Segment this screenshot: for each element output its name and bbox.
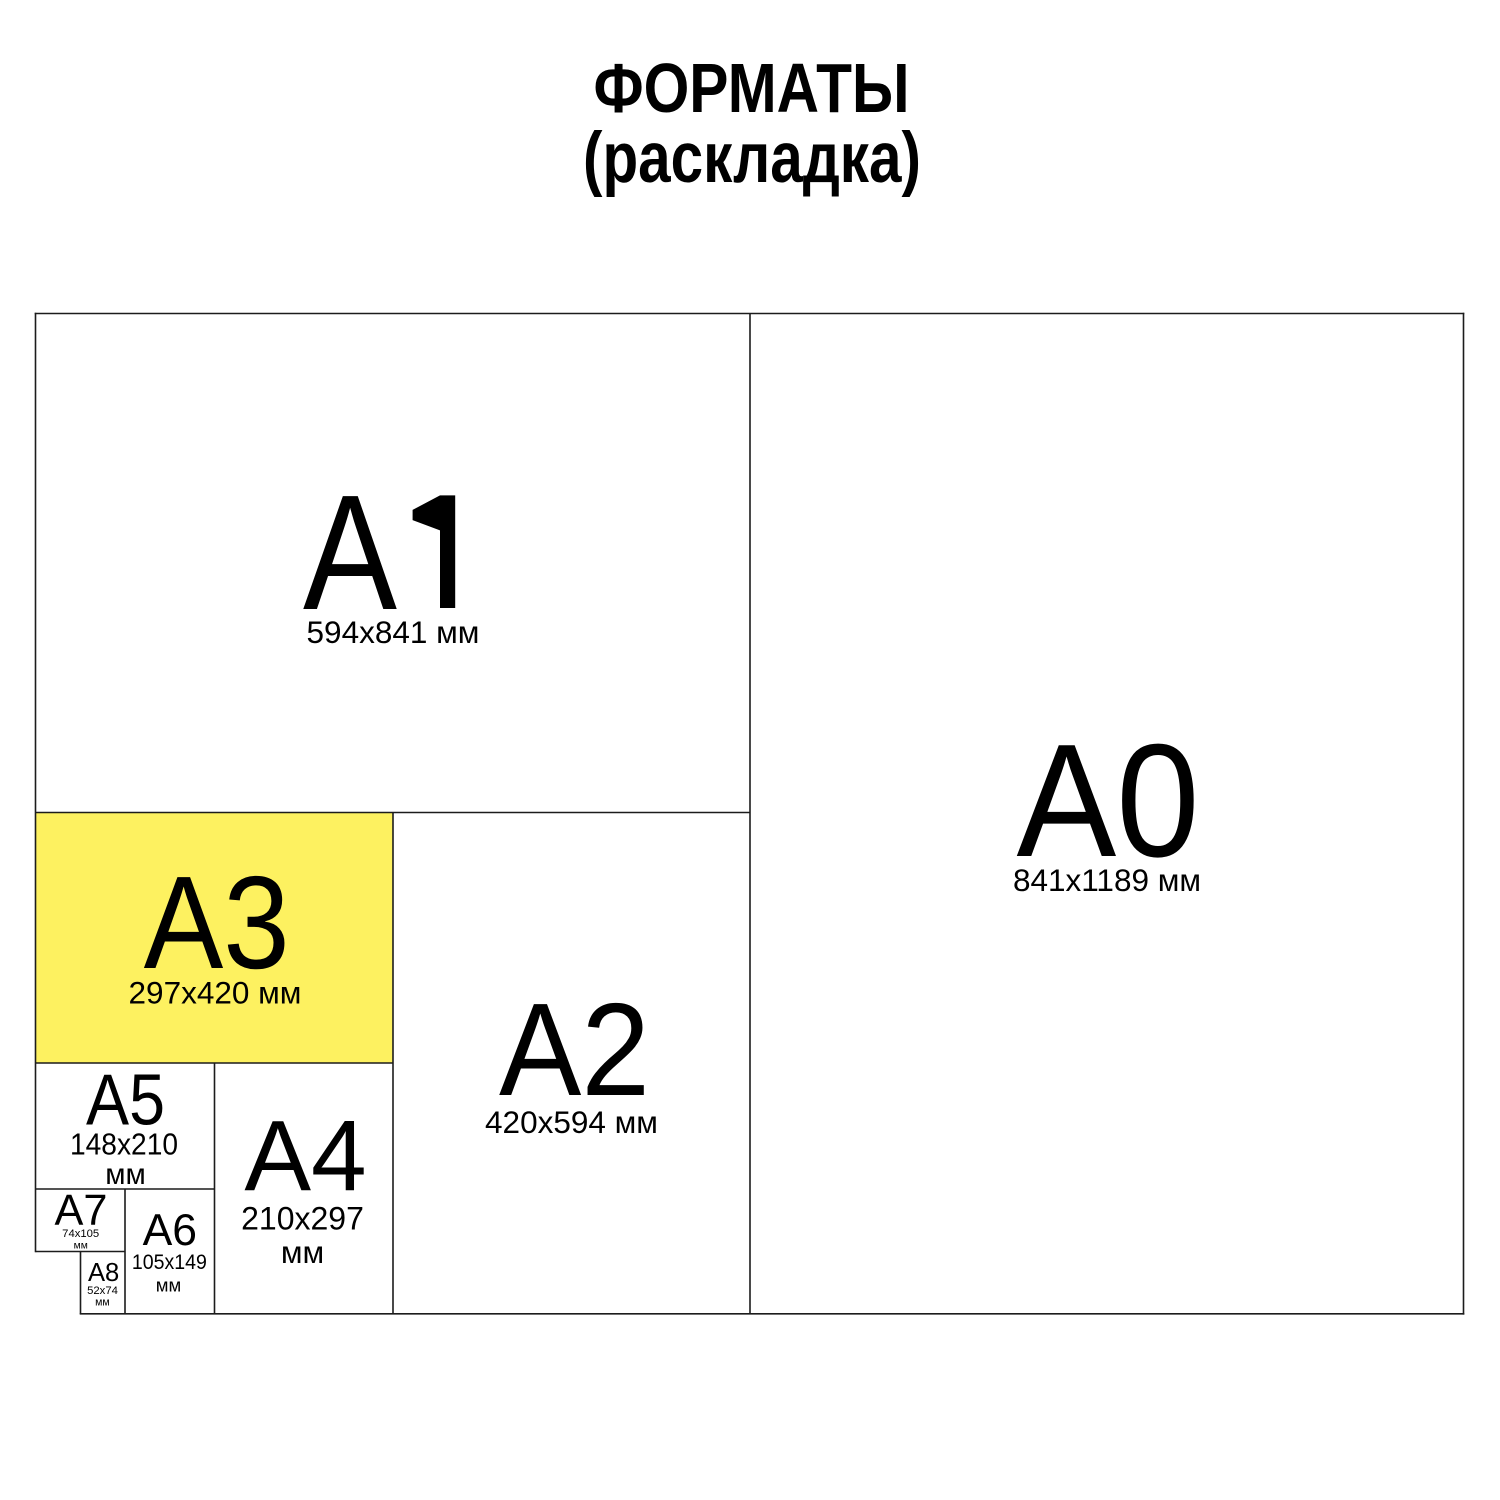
svg-text:мм: мм [74, 1241, 88, 1252]
svg-text:420x594 мм: 420x594 мм [485, 1104, 658, 1140]
svg-text:мм: мм [95, 1297, 110, 1309]
svg-text:мм: мм [281, 1234, 324, 1270]
svg-text:210x297: 210x297 [241, 1201, 364, 1237]
svg-text:A6: A6 [143, 1206, 197, 1255]
svg-text:(раскладка): (раскладка) [583, 119, 921, 198]
svg-text:841x1189 мм: 841x1189 мм [1013, 862, 1201, 898]
svg-text:мм: мм [105, 1158, 146, 1191]
svg-text:594x841 мм: 594x841 мм [307, 614, 480, 650]
svg-text:A2: A2 [499, 976, 650, 1123]
svg-text:74x105: 74x105 [62, 1228, 99, 1240]
svg-text:148x210: 148x210 [70, 1128, 178, 1162]
svg-text:105x149: 105x149 [132, 1250, 207, 1274]
svg-text:A4: A4 [244, 1100, 366, 1212]
svg-text:мм: мм [156, 1275, 181, 1296]
svg-text:A8: A8 [88, 1259, 119, 1287]
svg-text:297x420 мм: 297x420 мм [129, 975, 302, 1011]
svg-text:ФОРМАТЫ: ФОРМАТЫ [594, 49, 910, 127]
svg-text:52x74: 52x74 [87, 1285, 118, 1297]
